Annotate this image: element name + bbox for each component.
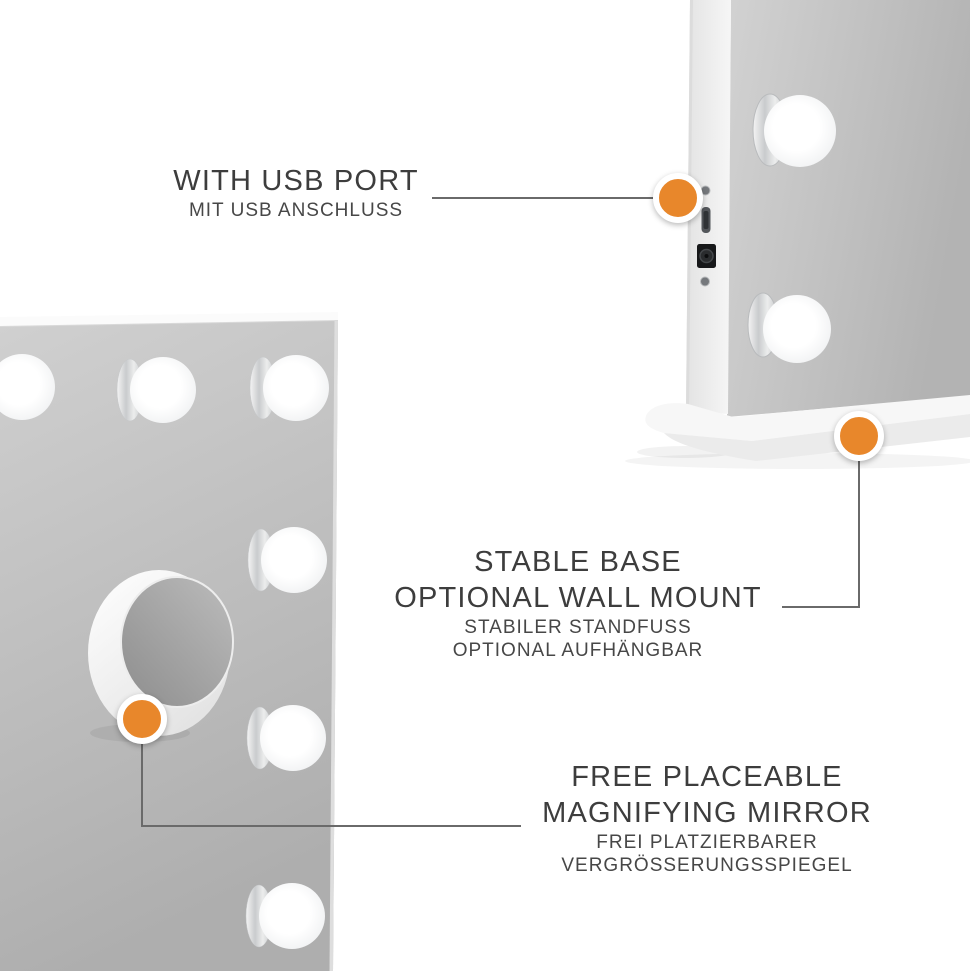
product-feature-image: WITH USB PORT MIT USB ANSCHLUSS STABLE B…: [0, 0, 970, 971]
usb-port-marker: [653, 173, 703, 223]
magnifier-connector-line-vertical: [141, 744, 143, 826]
screw-icon: [701, 277, 710, 286]
stable-base-marker: [834, 411, 884, 461]
magnifier-title-line1: FREE PLACEABLE: [497, 759, 917, 795]
magnifying-mirror-marker: [117, 694, 167, 744]
led-bulb-icon: [748, 293, 831, 363]
magnifying-mirror-annotation: FREE PLACEABLE MAGNIFYING MIRROR FREI PL…: [497, 759, 917, 877]
magnifier-title-line2: MAGNIFYING MIRROR: [497, 795, 917, 831]
magnifier-connector-line-horizontal: [141, 825, 521, 827]
led-bulb-icon: [248, 527, 327, 593]
dc-jack-icon: [697, 244, 716, 268]
base-title-line2: OPTIONAL WALL MOUNT: [378, 580, 778, 616]
usb-subtitle: MIT USB ANSCHLUSS: [126, 199, 466, 222]
base-title-line1: STABLE BASE: [378, 544, 778, 580]
usb-title: WITH USB PORT: [126, 163, 466, 199]
magnifier-subtitle-line2: VERGRÖSSERUNGSSPIEGEL: [497, 854, 917, 877]
led-bulb-icon: [250, 355, 329, 421]
base-connector-line-horizontal: [782, 606, 860, 608]
usb-annotation: WITH USB PORT MIT USB ANSCHLUSS: [126, 163, 466, 222]
side-mirror-scene: [625, 0, 970, 469]
base-connector-line-vertical: [858, 461, 860, 607]
magnifier-subtitle-line1: FREI PLATZIERBARER: [497, 831, 917, 854]
usb-port-icon: [702, 207, 711, 233]
front-mirror-scene: [0, 312, 338, 971]
led-bulb-icon: [247, 705, 326, 771]
led-bulb-icon: [117, 357, 196, 423]
stable-base-annotation: STABLE BASE OPTIONAL WALL MOUNT STABILER…: [378, 544, 778, 662]
led-bulb-icon: [753, 94, 836, 167]
base-subtitle-line2: OPTIONAL AUFHÄNGBAR: [378, 639, 778, 662]
base-subtitle-line1: STABILER STANDFUSS: [378, 616, 778, 639]
led-bulb-icon: [246, 883, 325, 949]
